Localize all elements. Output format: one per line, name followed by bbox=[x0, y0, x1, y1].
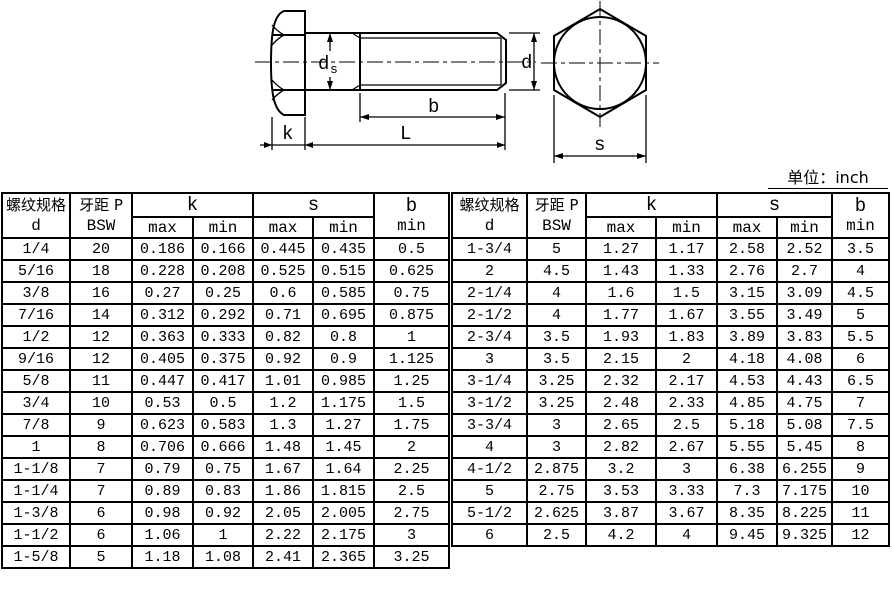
k-label: k bbox=[282, 123, 293, 145]
table-cell: 0.985 bbox=[313, 370, 374, 392]
table-cell: 2.75 bbox=[374, 502, 449, 524]
table-cell: 0.333 bbox=[193, 326, 253, 348]
table-row: 33.52.1524.184.086 bbox=[452, 348, 889, 370]
table-cell: 5.18 bbox=[717, 414, 777, 436]
table-cell: 1.6 bbox=[586, 282, 656, 304]
table-cell: 1.815 bbox=[313, 480, 374, 502]
table-cell: 7 bbox=[832, 392, 889, 414]
table-cell: 0.92 bbox=[193, 502, 253, 524]
table-cell: 0.585 bbox=[313, 282, 374, 304]
table-cell: 5 bbox=[452, 480, 527, 502]
table-cell: 1.86 bbox=[253, 480, 313, 502]
table-cell: 0.82 bbox=[253, 326, 313, 348]
table-row: 24.51.431.332.762.74 bbox=[452, 260, 889, 282]
table-row: 1-1/261.0612.222.1753 bbox=[2, 524, 449, 546]
col-header-b: b min bbox=[832, 193, 889, 238]
table-cell: 0.292 bbox=[193, 304, 253, 326]
table-cell: 1/2 bbox=[2, 326, 70, 348]
table-cell: 2.625 bbox=[527, 502, 586, 524]
table-cell: 6.255 bbox=[777, 458, 832, 480]
table-cell: 3 bbox=[527, 414, 586, 436]
table-cell: 4 bbox=[527, 282, 586, 304]
left-table-body: 1/4200.1860.1660.4450.4350.55/16180.2280… bbox=[2, 238, 449, 568]
table-cell: 1.77 bbox=[586, 304, 656, 326]
table-row: 2-3/43.51.931.833.893.835.5 bbox=[452, 326, 889, 348]
table-cell: 5-1/2 bbox=[452, 502, 527, 524]
table-row: 1-5/851.181.082.412.3653.25 bbox=[2, 546, 449, 568]
table-cell: 2.33 bbox=[656, 392, 717, 414]
table-cell: 2.25 bbox=[374, 458, 449, 480]
header-line: BSW bbox=[71, 216, 131, 236]
table-cell: 1 bbox=[374, 326, 449, 348]
table-cell: 3.83 bbox=[777, 326, 832, 348]
table-cell: 3-1/4 bbox=[452, 370, 527, 392]
table-row: 7/16140.3120.2920.710.6950.875 bbox=[2, 304, 449, 326]
table-cell: 2.875 bbox=[527, 458, 586, 480]
table-cell: 1.5 bbox=[656, 282, 717, 304]
table-cell: 0.5 bbox=[374, 238, 449, 260]
table-cell: 6 bbox=[452, 524, 527, 546]
table-cell: 2.22 bbox=[253, 524, 313, 546]
table-cell: 2.5 bbox=[374, 480, 449, 502]
table-cell: 1.83 bbox=[656, 326, 717, 348]
table-cell: 4.08 bbox=[777, 348, 832, 370]
table-cell: 1/4 bbox=[2, 238, 70, 260]
table-cell: 1.2 bbox=[253, 392, 313, 414]
header-line: b bbox=[833, 196, 888, 216]
table-cell: 7/16 bbox=[2, 304, 70, 326]
table-cell: 0.525 bbox=[253, 260, 313, 282]
table-cell: 5 bbox=[70, 546, 132, 568]
table-cell: 0.75 bbox=[193, 458, 253, 480]
table-cell: 9/16 bbox=[2, 348, 70, 370]
table-cell: 2.175 bbox=[313, 524, 374, 546]
col-header-spec: 螺纹规格 d bbox=[2, 193, 70, 238]
table-cell: 5.5 bbox=[832, 326, 889, 348]
table-cell: 1.125 bbox=[374, 348, 449, 370]
col-header-pitch: 牙距 P BSW bbox=[70, 193, 132, 238]
table-cell: 0.515 bbox=[313, 260, 374, 282]
table-cell: 3.15 bbox=[717, 282, 777, 304]
spec-table-right: 螺纹规格 d 牙距 P BSW k s b min max min max mi… bbox=[451, 192, 890, 547]
table-cell: 3.53 bbox=[586, 480, 656, 502]
table-cell: 11 bbox=[832, 502, 889, 524]
table-cell: 4 bbox=[527, 304, 586, 326]
table-cell: 0.625 bbox=[374, 260, 449, 282]
d-label: d bbox=[521, 52, 532, 74]
table-cell: 7.5 bbox=[832, 414, 889, 436]
table-cell: 1.43 bbox=[586, 260, 656, 282]
table-cell: 3.25 bbox=[527, 370, 586, 392]
table-cell: 6 bbox=[70, 502, 132, 524]
table-cell: 1.5 bbox=[374, 392, 449, 414]
table-cell: 3-3/4 bbox=[452, 414, 527, 436]
table-cell: 0.27 bbox=[132, 282, 193, 304]
table-cell: 1.33 bbox=[656, 260, 717, 282]
table-row: 9/16120.4050.3750.920.91.125 bbox=[2, 348, 449, 370]
ds-label-sub: s bbox=[330, 62, 338, 77]
table-cell: 8.35 bbox=[717, 502, 777, 524]
col-header-spec: 螺纹规格 d bbox=[452, 193, 527, 238]
table-cell: 2.41 bbox=[253, 546, 313, 568]
table-cell: 4 bbox=[656, 524, 717, 546]
table-cell: 2.76 bbox=[717, 260, 777, 282]
subheader-s-max: max bbox=[253, 217, 313, 238]
subheader-k-max: max bbox=[586, 217, 656, 238]
table-row: 1-1/470.890.831.861.8152.5 bbox=[2, 480, 449, 502]
table-cell: 1.175 bbox=[313, 392, 374, 414]
table-cell: 3/8 bbox=[2, 282, 70, 304]
table-cell: 1-1/2 bbox=[2, 524, 70, 546]
table-cell: 5 bbox=[527, 238, 586, 260]
table-cell: 2-1/4 bbox=[452, 282, 527, 304]
table-cell: 5.45 bbox=[777, 436, 832, 458]
table-cell: 4.85 bbox=[717, 392, 777, 414]
table-cell: 5 bbox=[832, 304, 889, 326]
table-cell: 1.18 bbox=[132, 546, 193, 568]
table-cell: 1.25 bbox=[374, 370, 449, 392]
table-cell: 0.92 bbox=[253, 348, 313, 370]
table-cell: 0.623 bbox=[132, 414, 193, 436]
s-label: s bbox=[594, 134, 605, 156]
subheader-s-min: min bbox=[313, 217, 374, 238]
table-cell: 4.75 bbox=[777, 392, 832, 414]
col-header-s: s bbox=[717, 193, 832, 217]
table-cell: 1-1/4 bbox=[2, 480, 70, 502]
table-row: 52.753.533.337.37.17510 bbox=[452, 480, 889, 502]
col-header-k: k bbox=[132, 193, 253, 217]
table-cell: 2 bbox=[656, 348, 717, 370]
table-cell: 1.64 bbox=[313, 458, 374, 480]
table-row: 4-1/22.8753.236.386.2559 bbox=[452, 458, 889, 480]
table-cell: 3 bbox=[656, 458, 717, 480]
table-cell: 6.5 bbox=[832, 370, 889, 392]
table-cell: 4.2 bbox=[586, 524, 656, 546]
table-cell: 4-1/2 bbox=[452, 458, 527, 480]
table-cell: 0.83 bbox=[193, 480, 253, 502]
table-row: 1-1/870.790.751.671.642.25 bbox=[2, 458, 449, 480]
table-cell: 11 bbox=[70, 370, 132, 392]
table-cell: 0.75 bbox=[374, 282, 449, 304]
table-cell: 4 bbox=[832, 260, 889, 282]
table-row: 5-1/22.6253.873.678.358.22511 bbox=[452, 502, 889, 524]
table-cell: 2.67 bbox=[656, 436, 717, 458]
table-cell: 0.375 bbox=[193, 348, 253, 370]
table-cell: 1.67 bbox=[656, 304, 717, 326]
table-cell: 0.186 bbox=[132, 238, 193, 260]
table-cell: 1-1/8 bbox=[2, 458, 70, 480]
col-header-pitch: 牙距 P BSW bbox=[527, 193, 586, 238]
table-cell: 14 bbox=[70, 304, 132, 326]
table-cell: 5/8 bbox=[2, 370, 70, 392]
table-row: 2-1/241.771.673.553.495 bbox=[452, 304, 889, 326]
table-cell: 3.25 bbox=[374, 546, 449, 568]
table-cell: 2.65 bbox=[586, 414, 656, 436]
table-cell: 4.18 bbox=[717, 348, 777, 370]
table-cell: 4 bbox=[452, 436, 527, 458]
table-cell: 5.55 bbox=[717, 436, 777, 458]
table-cell: 2.15 bbox=[586, 348, 656, 370]
table-cell: 6 bbox=[70, 524, 132, 546]
table-cell: 1.06 bbox=[132, 524, 193, 546]
table-cell: 3/4 bbox=[2, 392, 70, 414]
table-cell: 1.01 bbox=[253, 370, 313, 392]
table-cell: 4.5 bbox=[832, 282, 889, 304]
table-cell: 2.32 bbox=[586, 370, 656, 392]
table-cell: 0.9 bbox=[313, 348, 374, 370]
table-cell: 2.05 bbox=[253, 502, 313, 524]
table-cell: 3.2 bbox=[586, 458, 656, 480]
ds-label-base: d bbox=[318, 53, 329, 75]
table-cell: 2-3/4 bbox=[452, 326, 527, 348]
table-cell: 3.55 bbox=[717, 304, 777, 326]
table-row: 7/890.6230.5831.31.271.75 bbox=[2, 414, 449, 436]
table-cell: 12 bbox=[70, 348, 132, 370]
table-cell: 0.53 bbox=[132, 392, 193, 414]
table-cell: 3.09 bbox=[777, 282, 832, 304]
table-row: 1-3/451.271.172.582.523.5 bbox=[452, 238, 889, 260]
table-cell: 0.228 bbox=[132, 260, 193, 282]
table-cell: 1-3/8 bbox=[2, 502, 70, 524]
table-cell: 12 bbox=[70, 326, 132, 348]
L-label: L bbox=[400, 123, 411, 145]
table-cell: 2 bbox=[374, 436, 449, 458]
table-cell: 0.5 bbox=[193, 392, 253, 414]
dim-L-k: k L bbox=[260, 117, 505, 150]
spec-table-left: 螺纹规格 d 牙距 P BSW k s b min max min max mi… bbox=[1, 192, 450, 569]
header-line: 螺纹规格 bbox=[453, 195, 526, 216]
header-line: min bbox=[833, 216, 888, 236]
table-cell: 1.27 bbox=[586, 238, 656, 260]
table-cell: 1.75 bbox=[374, 414, 449, 436]
table-row: 1-3/860.980.922.052.0052.75 bbox=[2, 502, 449, 524]
table-cell: 5.08 bbox=[777, 414, 832, 436]
table-cell: 2.365 bbox=[313, 546, 374, 568]
table-cell: 0.6 bbox=[253, 282, 313, 304]
table-cell: 1 bbox=[2, 436, 70, 458]
table-cell: 0.79 bbox=[132, 458, 193, 480]
table-cell: 1.93 bbox=[586, 326, 656, 348]
table-cell: 3.67 bbox=[656, 502, 717, 524]
table-cell: 6.38 bbox=[717, 458, 777, 480]
table-cell: 2.005 bbox=[313, 502, 374, 524]
table-cell: 0.875 bbox=[374, 304, 449, 326]
table-row: 3-1/43.252.322.174.534.436.5 bbox=[452, 370, 889, 392]
table-cell: 16 bbox=[70, 282, 132, 304]
table-cell: 3.49 bbox=[777, 304, 832, 326]
table-cell: 0.405 bbox=[132, 348, 193, 370]
table-row: 3/8160.270.250.60.5850.75 bbox=[2, 282, 449, 304]
table-cell: 7 bbox=[70, 480, 132, 502]
header-line: min bbox=[375, 216, 448, 236]
table-cell: 10 bbox=[70, 392, 132, 414]
table-cell: 1.45 bbox=[313, 436, 374, 458]
table-cell: 7/8 bbox=[2, 414, 70, 436]
table-cell: 9.325 bbox=[777, 524, 832, 546]
table-cell: 3.5 bbox=[832, 238, 889, 260]
dim-ds: d s bbox=[318, 33, 338, 90]
table-cell: 4.5 bbox=[527, 260, 586, 282]
col-header-k: k bbox=[586, 193, 717, 217]
table-cell: 2.58 bbox=[717, 238, 777, 260]
b-label: b bbox=[428, 96, 439, 118]
table-cell: 0.363 bbox=[132, 326, 193, 348]
bolt-side-view: d s d b bbox=[255, 11, 540, 150]
table-cell: 7 bbox=[70, 458, 132, 480]
table-cell: 8 bbox=[70, 436, 132, 458]
table-cell: 0.312 bbox=[132, 304, 193, 326]
table-cell: 3.87 bbox=[586, 502, 656, 524]
table-row: 5/16180.2280.2080.5250.5150.625 bbox=[2, 260, 449, 282]
table-cell: 3.33 bbox=[656, 480, 717, 502]
table-cell: 0.435 bbox=[313, 238, 374, 260]
table-cell: 0.208 bbox=[193, 260, 253, 282]
table-cell: 2.5 bbox=[656, 414, 717, 436]
table-cell: 1-3/4 bbox=[452, 238, 527, 260]
table-cell: 3-1/2 bbox=[452, 392, 527, 414]
table-cell: 1-5/8 bbox=[2, 546, 70, 568]
header-line: b bbox=[375, 196, 448, 216]
table-row: 5/8110.4470.4171.010.9851.25 bbox=[2, 370, 449, 392]
right-table-body: 1-3/451.271.172.582.523.524.51.431.332.7… bbox=[452, 238, 889, 546]
table-cell: 0.706 bbox=[132, 436, 193, 458]
table-cell: 1.67 bbox=[253, 458, 313, 480]
bolt-head-outline bbox=[271, 11, 305, 115]
table-cell: 0.666 bbox=[193, 436, 253, 458]
table-cell: 4.43 bbox=[777, 370, 832, 392]
table-cell: 6 bbox=[832, 348, 889, 370]
table-row: 432.822.675.555.458 bbox=[452, 436, 889, 458]
subheader-k-min: min bbox=[656, 217, 717, 238]
table-cell: 0.25 bbox=[193, 282, 253, 304]
header-line: d bbox=[453, 216, 526, 236]
table-cell: 1 bbox=[193, 524, 253, 546]
table-cell: 10 bbox=[832, 480, 889, 502]
table-row: 3-1/23.252.482.334.854.757 bbox=[452, 392, 889, 414]
table-cell: 2 bbox=[452, 260, 527, 282]
table-cell: 2.7 bbox=[777, 260, 832, 282]
table-cell: 0.71 bbox=[253, 304, 313, 326]
table-cell: 3.5 bbox=[527, 326, 586, 348]
table-row: 1/4200.1860.1660.4450.4350.5 bbox=[2, 238, 449, 260]
table-cell: 1.08 bbox=[193, 546, 253, 568]
table-cell: 3 bbox=[452, 348, 527, 370]
unit-label: 单位：inch bbox=[768, 168, 888, 189]
table-cell: 0.8 bbox=[313, 326, 374, 348]
header-line: BSW bbox=[528, 216, 585, 236]
table-cell: 4.53 bbox=[717, 370, 777, 392]
table-cell: 0.445 bbox=[253, 238, 313, 260]
table-cell: 1.3 bbox=[253, 414, 313, 436]
table-cell: 3.89 bbox=[717, 326, 777, 348]
table-row: 1/2120.3630.3330.820.81 bbox=[2, 326, 449, 348]
table-cell: 1.48 bbox=[253, 436, 313, 458]
header-group-row: 螺纹规格 d 牙距 P BSW k s b min bbox=[452, 193, 889, 217]
table-cell: 1.27 bbox=[313, 414, 374, 436]
table-cell: 9 bbox=[832, 458, 889, 480]
subheader-s-min: min bbox=[777, 217, 832, 238]
table-cell: 2.82 bbox=[586, 436, 656, 458]
table-cell: 7.3 bbox=[717, 480, 777, 502]
header-line: 螺纹规格 bbox=[3, 195, 69, 216]
table-row: 3/4100.530.51.21.1751.5 bbox=[2, 392, 449, 414]
header-line: d bbox=[3, 216, 69, 236]
subheader-k-max: max bbox=[132, 217, 193, 238]
table-cell: 2.17 bbox=[656, 370, 717, 392]
hex-head-end-view: s bbox=[541, 1, 659, 163]
table-row: 3-3/432.652.55.185.087.5 bbox=[452, 414, 889, 436]
header-line: 牙距 P bbox=[528, 195, 585, 216]
table-cell: 20 bbox=[70, 238, 132, 260]
table-cell: 3.5 bbox=[527, 348, 586, 370]
table-cell: 9 bbox=[70, 414, 132, 436]
table-cell: 0.583 bbox=[193, 414, 253, 436]
table-cell: 2.5 bbox=[527, 524, 586, 546]
table-cell: 12 bbox=[832, 524, 889, 546]
table-cell: 5/16 bbox=[2, 260, 70, 282]
table-cell: 0.98 bbox=[132, 502, 193, 524]
table-cell: 8 bbox=[832, 436, 889, 458]
table-cell: 0.166 bbox=[193, 238, 253, 260]
table-cell: 3 bbox=[527, 436, 586, 458]
table-cell: 18 bbox=[70, 260, 132, 282]
header-line: 牙距 P bbox=[71, 195, 131, 216]
table-cell: 3.25 bbox=[527, 392, 586, 414]
table-cell: 1.17 bbox=[656, 238, 717, 260]
header-group-row: 螺纹规格 d 牙距 P BSW k s b min bbox=[2, 193, 449, 217]
table-cell: 9.45 bbox=[717, 524, 777, 546]
table-row: 2-1/441.61.53.153.094.5 bbox=[452, 282, 889, 304]
table-cell: 2.52 bbox=[777, 238, 832, 260]
table-cell: 8.225 bbox=[777, 502, 832, 524]
table-cell: 2.48 bbox=[586, 392, 656, 414]
table-cell: 0.417 bbox=[193, 370, 253, 392]
col-header-b: b min bbox=[374, 193, 449, 238]
subheader-k-min: min bbox=[193, 217, 253, 238]
table-cell: 2-1/2 bbox=[452, 304, 527, 326]
table-row: 62.54.249.459.32512 bbox=[452, 524, 889, 546]
col-header-s: s bbox=[253, 193, 374, 217]
subheader-s-max: max bbox=[717, 217, 777, 238]
table-row: 180.7060.6661.481.452 bbox=[2, 436, 449, 458]
bolt-drawing: d s d b bbox=[0, 0, 892, 192]
table-cell: 0.89 bbox=[132, 480, 193, 502]
table-cell: 3 bbox=[374, 524, 449, 546]
table-cell: 2.75 bbox=[527, 480, 586, 502]
table-cell: 0.447 bbox=[132, 370, 193, 392]
dim-b: b bbox=[360, 93, 505, 150]
spec-sheet: d s d b bbox=[0, 0, 892, 600]
table-cell: 0.695 bbox=[313, 304, 374, 326]
table-cell: 7.175 bbox=[777, 480, 832, 502]
